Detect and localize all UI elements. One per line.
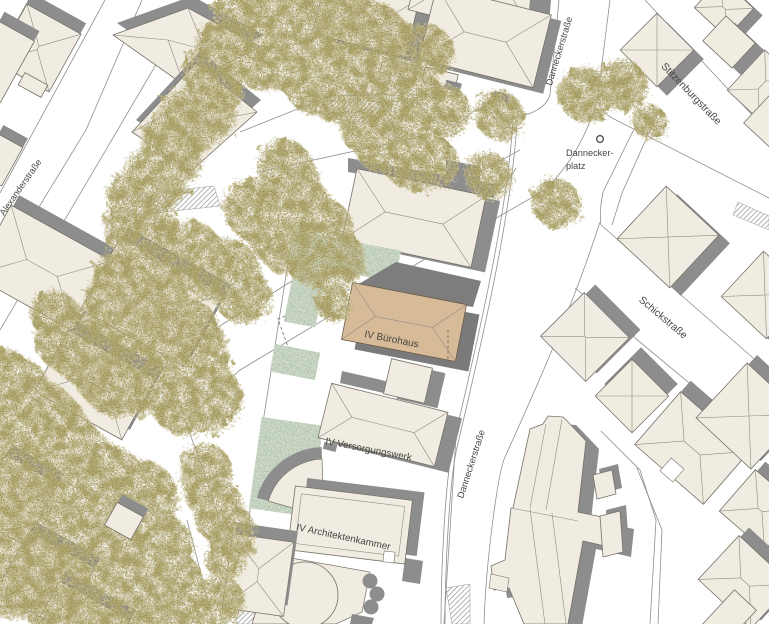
svg-text:Dannecker-: Dannecker-: [566, 148, 614, 158]
svg-text:platz: platz: [566, 161, 586, 171]
